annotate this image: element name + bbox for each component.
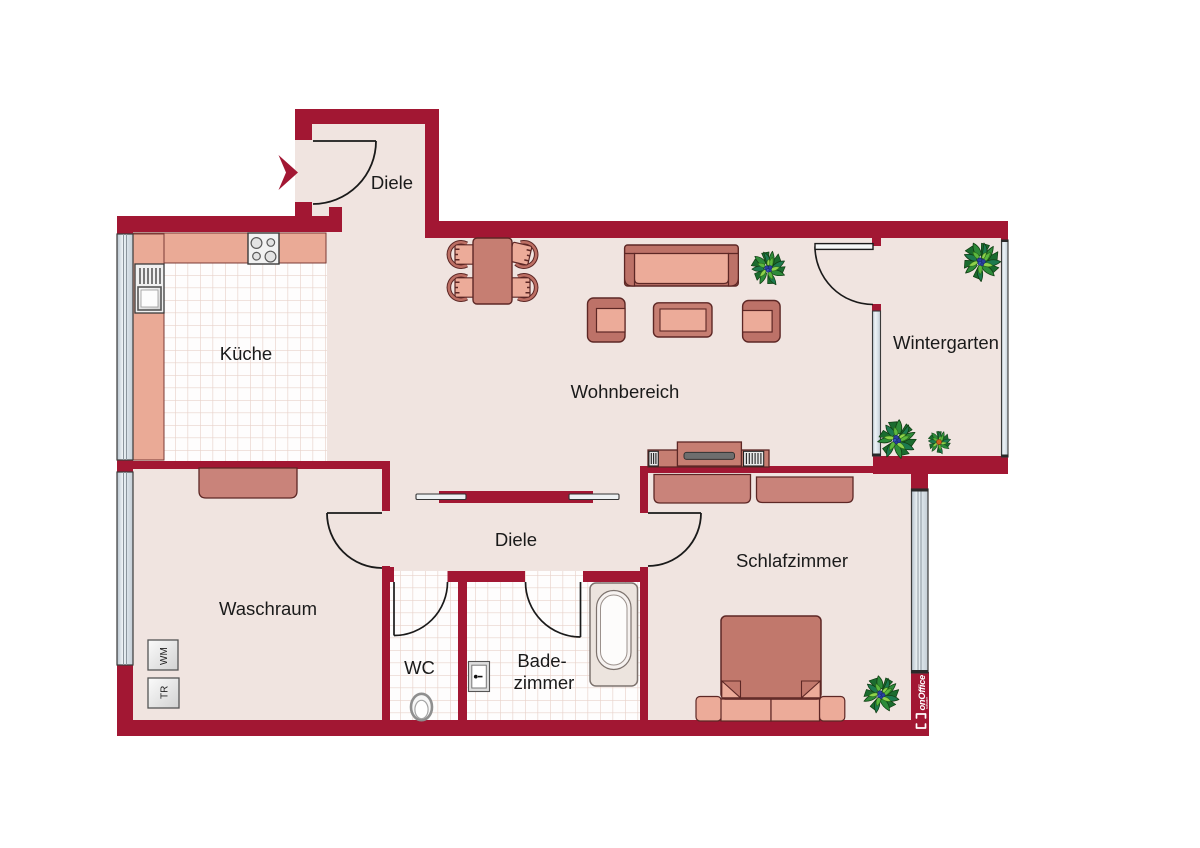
svg-text:Wintergarten: Wintergarten: [893, 332, 999, 353]
svg-text:Schlafzimmer: Schlafzimmer: [736, 550, 848, 571]
svg-text:zimmer: zimmer: [514, 672, 575, 693]
svg-text:WC: WC: [404, 657, 435, 678]
svg-text:Bade-: Bade-: [517, 650, 566, 671]
svg-text:TR: TR: [160, 686, 171, 699]
svg-text:Waschraum: Waschraum: [219, 598, 317, 619]
svg-text:Diele: Diele: [495, 529, 537, 550]
svg-text:Küche: Küche: [220, 343, 272, 364]
svg-text:WM: WM: [159, 647, 170, 665]
svg-text:Wohnbereich: Wohnbereich: [571, 381, 680, 402]
svg-text:software: software: [925, 697, 929, 709]
svg-text:Diele: Diele: [371, 172, 413, 193]
